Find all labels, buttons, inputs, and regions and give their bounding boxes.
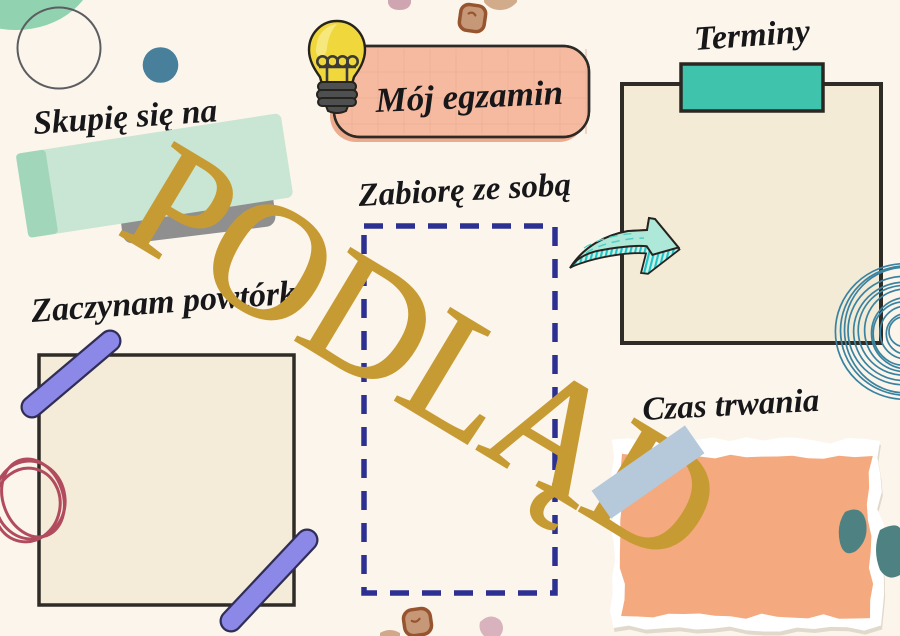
svg-text:Mój egzamin: Mój egzamin (374, 73, 564, 120)
